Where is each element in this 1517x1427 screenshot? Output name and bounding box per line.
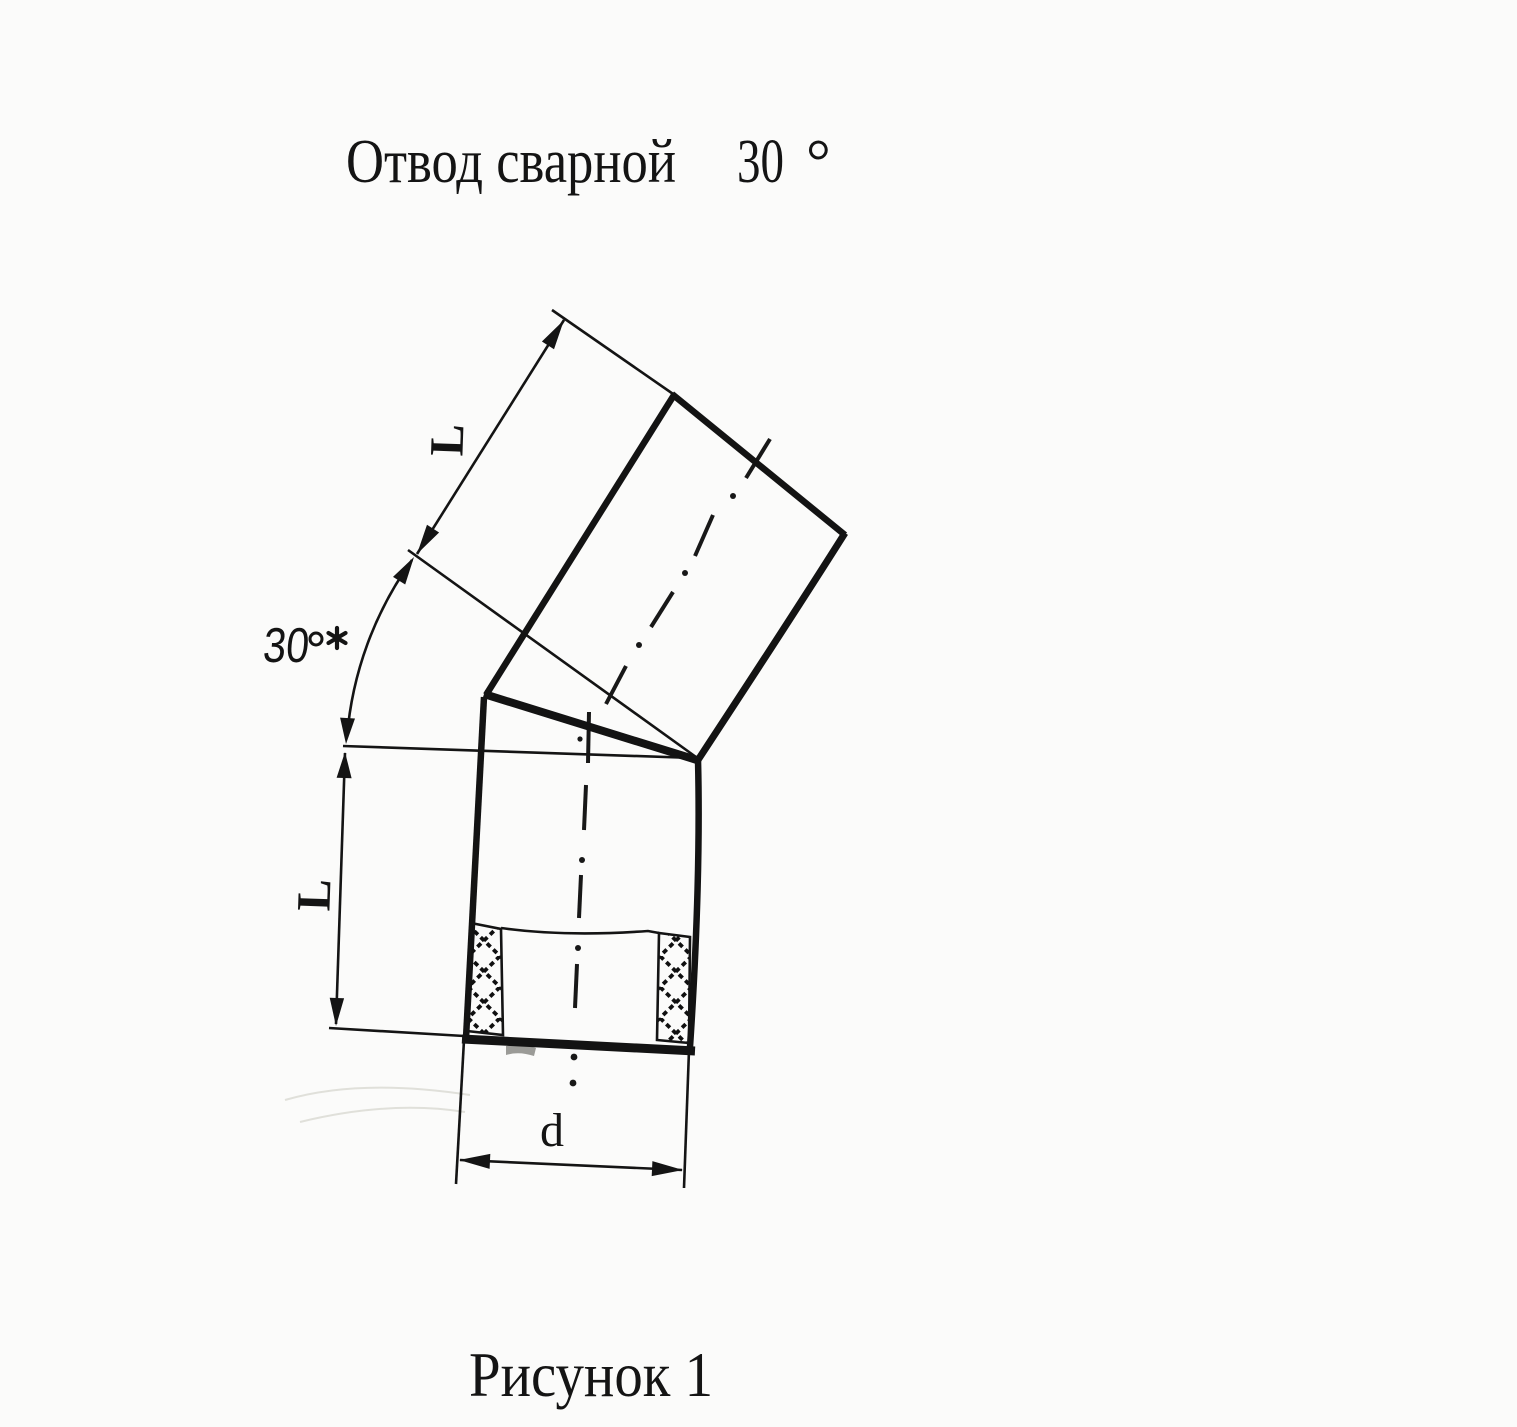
svg-text:d: d: [540, 1104, 564, 1157]
svg-text:Рисунок 1: Рисунок 1: [469, 1339, 713, 1410]
svg-text:30: 30: [737, 128, 784, 196]
svg-text:Отвод сварной: Отвод сварной: [346, 128, 676, 196]
svg-text:L: L: [287, 878, 341, 912]
svg-text:30: 30: [261, 618, 312, 673]
svg-text:L: L: [420, 423, 474, 457]
svg-text:°: °: [806, 128, 831, 196]
